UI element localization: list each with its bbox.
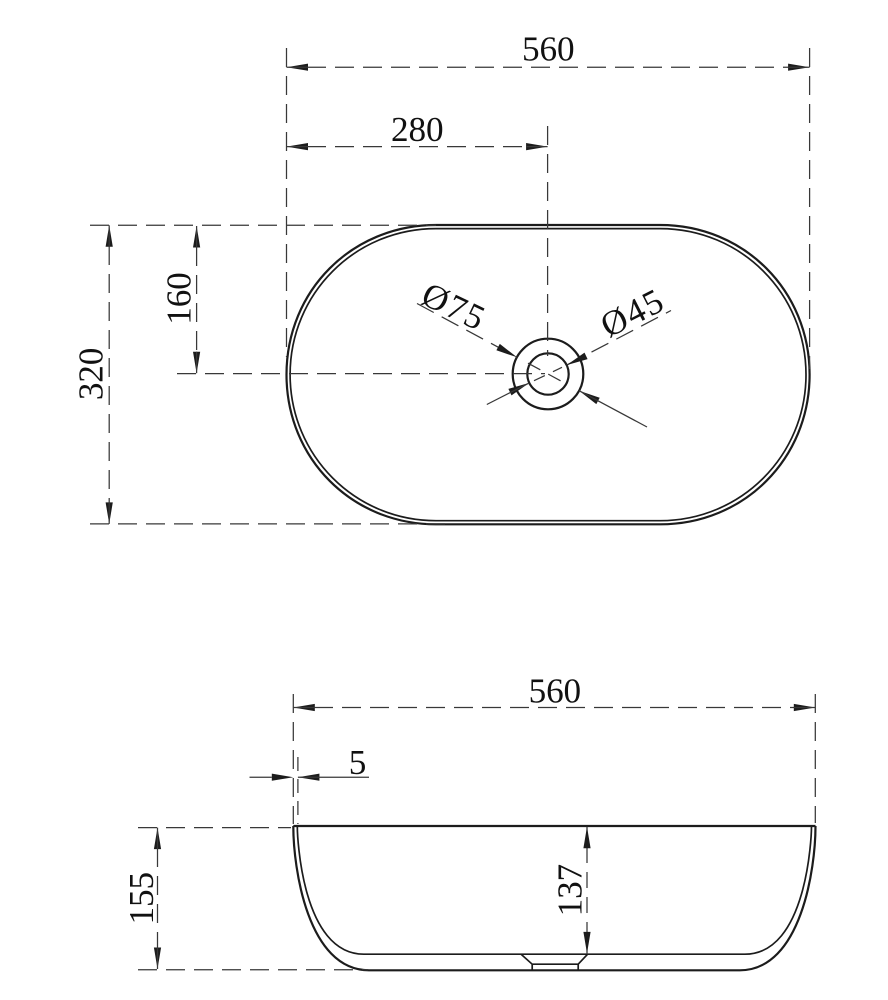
svg-text:137: 137 — [550, 864, 589, 917]
svg-text:320: 320 — [72, 348, 111, 401]
svg-text:160: 160 — [160, 272, 199, 325]
svg-text:Ø75: Ø75 — [416, 275, 491, 338]
svg-text:5: 5 — [349, 743, 367, 782]
svg-text:Ø45: Ø45 — [594, 281, 669, 345]
svg-text:560: 560 — [522, 30, 575, 69]
svg-text:560: 560 — [529, 672, 582, 711]
svg-text:280: 280 — [391, 110, 444, 149]
svg-text:155: 155 — [122, 872, 161, 925]
